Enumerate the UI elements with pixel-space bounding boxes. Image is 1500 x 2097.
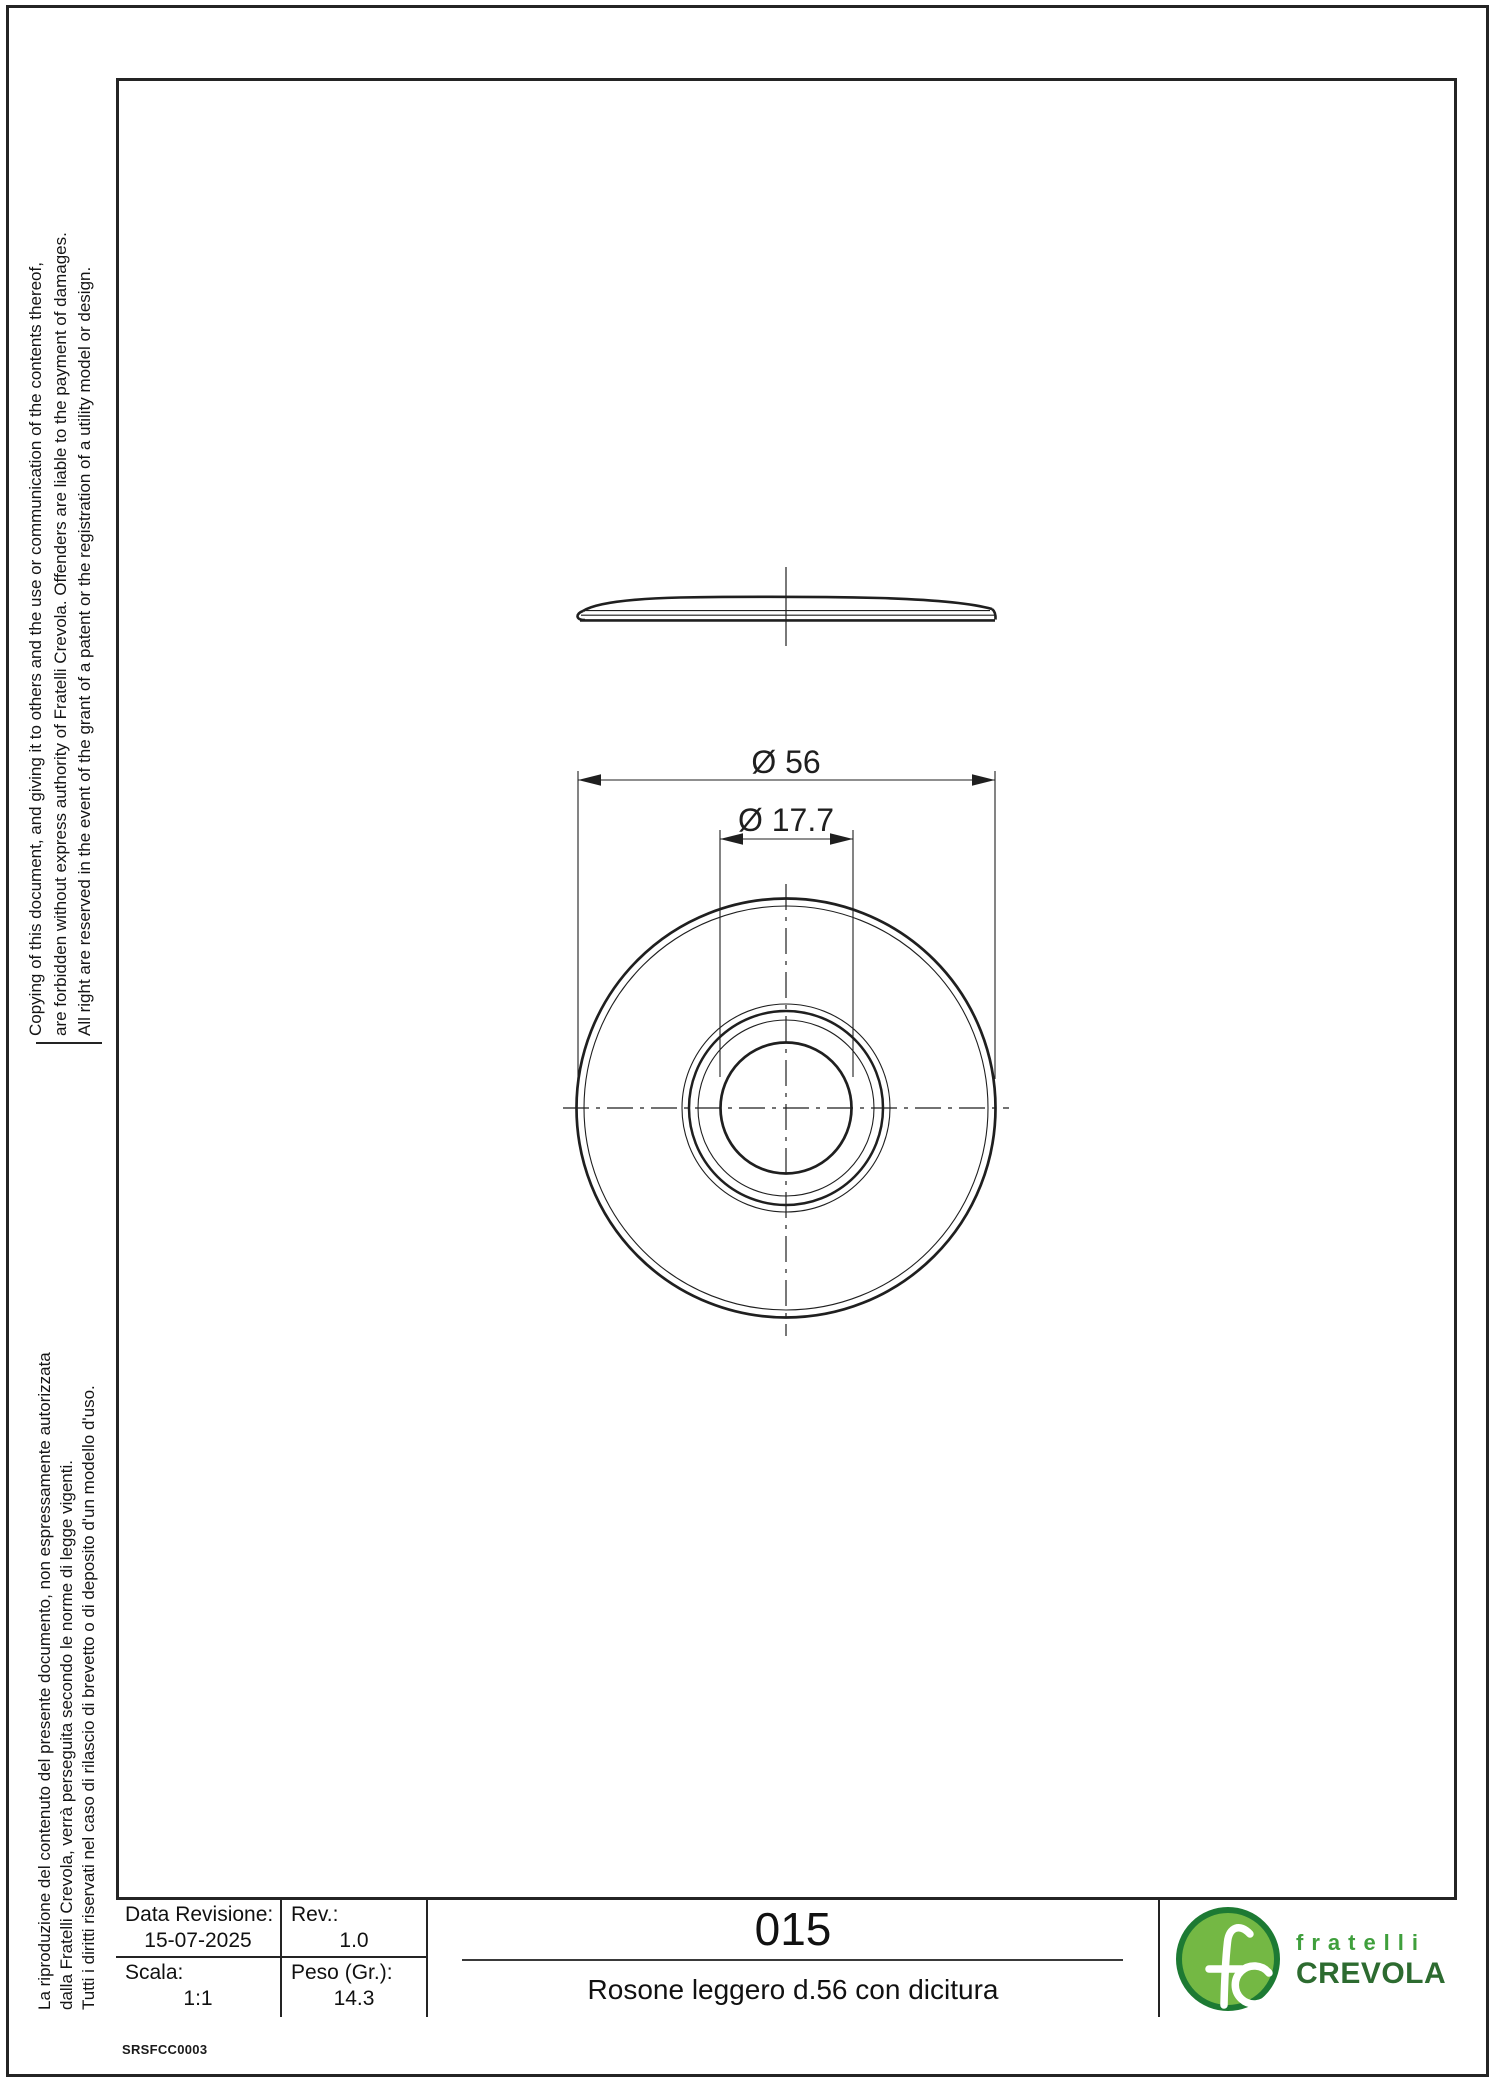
arrowhead-right (972, 774, 995, 785)
rev-label: Rev.: (282, 1900, 426, 1927)
rev-value: 1.0 (282, 1929, 426, 1953)
side-view (578, 567, 996, 646)
dimension-label-inner: Ø 17.7 (738, 802, 834, 838)
part-separator-line (462, 1959, 1123, 1961)
scala-label: Scala: (116, 1958, 280, 1985)
data-revisione-value: 15-07-2025 (116, 1929, 280, 1953)
peso-label: Peso (Gr.): (282, 1958, 426, 1985)
arrowhead-left (578, 774, 601, 785)
scala-value: 1:1 (116, 1987, 280, 2011)
dimension-label-outer: Ø 56 (751, 744, 820, 780)
part-name: Rosone leggero d.56 con dicitura (428, 1974, 1158, 2006)
cell-peso: Peso (Gr.): 14.3 (282, 1958, 426, 2016)
title-block-column-rev-peso: Rev.: 1.0 Peso (Gr.): 14.3 (282, 1900, 428, 2017)
fc-monogram-icon (1182, 1913, 1286, 2017)
part-number: 015 (428, 1902, 1158, 1956)
title-block: Data Revisione: 15-07-2025 Scala: 1:1 Re… (116, 1897, 1457, 2017)
cell-rev: Rev.: 1.0 (282, 1900, 426, 1958)
company-logo-icon (1176, 1907, 1280, 2011)
document-code: SRSFCC0003 (122, 2042, 207, 2057)
title-block-column-revision: Data Revisione: 15-07-2025 Scala: 1:1 (116, 1900, 282, 2017)
cell-scala: Scala: 1:1 (116, 1958, 280, 2016)
technical-drawing: Ø 56 Ø 17.7 (0, 0, 1500, 2097)
drawing-sheet: Copying of this document, and giving it … (0, 0, 1500, 2097)
title-block-logo-cell: fratelli CREVOLA (1160, 1900, 1457, 2017)
data-revisione-label: Data Revisione: (116, 1900, 280, 1927)
front-view (563, 884, 1009, 1336)
company-wordmark: fratelli CREVOLA (1296, 1930, 1446, 1991)
peso-value: 14.3 (282, 1987, 426, 2011)
logo-text-crevola: CREVOLA (1296, 1957, 1446, 1991)
title-block-part-cell: 015 Rosone leggero d.56 con dicitura (428, 1900, 1160, 2017)
logo-text-fratelli: fratelli (1296, 1930, 1446, 1956)
cell-data-revisione: Data Revisione: 15-07-2025 (116, 1900, 280, 1958)
